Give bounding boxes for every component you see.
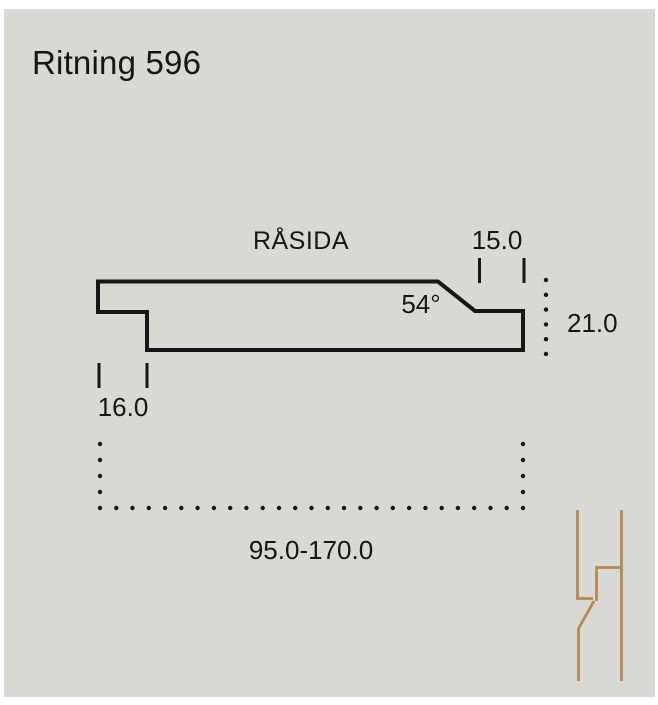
dimension-notch-width: 16.0	[98, 394, 149, 420]
dimension-thickness: 21.0	[567, 310, 618, 336]
surface-label: RÅSIDA	[253, 229, 349, 254]
tick-marks-notch-width	[99, 363, 147, 388]
cladding-joint-profile-icon	[578, 510, 622, 681]
dimension-bevel-angle: 54°	[401, 291, 440, 317]
profile-drawing	[0, 0, 658, 705]
dimension-total-width: 95.0-170.0	[249, 537, 373, 563]
dimension-tongue-width: 15.0	[472, 227, 523, 253]
tick-marks-tongue-width	[480, 258, 525, 283]
profile-outline	[98, 282, 523, 351]
drawing-page: Ritning 596 RÅSIDA 15.0 54° 21.0 16.0 95…	[0, 0, 658, 705]
page-title: Ritning 596	[32, 46, 201, 79]
